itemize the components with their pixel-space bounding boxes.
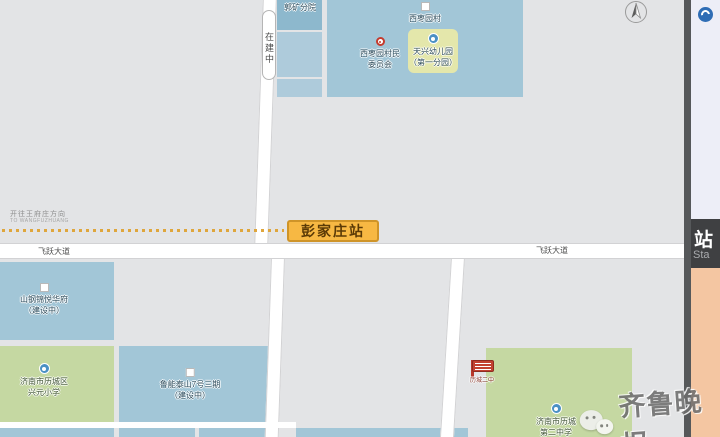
bus-stop-icon [472, 360, 494, 372]
kindergarten-label-line2: （第一分园） [409, 57, 457, 68]
committee-label-line1: 西枣园村民 [360, 48, 400, 59]
road-label-feiyue-right: 飞跃大道 [536, 245, 568, 256]
road-bottom [0, 422, 296, 428]
poi-hospital[interactable]: 郭矿分院 [284, 2, 316, 13]
building-block [277, 79, 322, 97]
licheng2-label-line1: 济南市历城 [536, 416, 576, 427]
village-label: 西枣园村 [409, 13, 441, 24]
station-panel-top[interactable] [691, 0, 720, 219]
road-label-feiyue-left: 飞跃大道 [38, 246, 70, 257]
kindergarten-icon [428, 33, 439, 44]
compass-icon[interactable] [623, 0, 649, 26]
road-vertical-under-construction-south [265, 257, 285, 437]
xingyuan-label-line2: 兴元小学 [28, 387, 60, 398]
watermark: 齐鲁晚报 [577, 378, 720, 437]
panel-station-label-cn: 站 [694, 225, 713, 252]
committee-label-line2: 委员会 [368, 59, 392, 70]
school-icon [39, 363, 50, 374]
building-block [199, 428, 271, 437]
xingyuan-label-line1: 济南市历城区 [20, 376, 68, 387]
station-badge-pengjiazhuang[interactable]: 彭家庄站 [287, 220, 379, 242]
panel-station-label-en: Sta [693, 249, 710, 261]
shangang-label-line1: 山钢锦悦华府 [20, 294, 68, 305]
poi-committee[interactable]: 西枣园村民 委员会 [360, 37, 400, 70]
building-icon [40, 283, 49, 292]
building-block [119, 428, 195, 437]
watermark-text: 齐鲁晚报 [617, 378, 720, 437]
hospital-label: 郭矿分院 [284, 2, 316, 13]
road-vertical-east [440, 257, 465, 437]
building-block [0, 428, 114, 437]
poi-shangang[interactable]: 山钢锦悦华府 （建设中） [20, 283, 68, 316]
luneng-label-line1: 鲁能泰山7号三期 [160, 379, 220, 390]
poi-village[interactable]: 西枣园村 [409, 2, 441, 24]
map-app: 开往王府庄方向 TO WANGFUZHUANG 彭家庄站 在建中 飞跃大道 飞跃… [0, 0, 720, 437]
shangang-label-line2: （建设中） [24, 305, 64, 316]
kindergarten-label-line1: 天兴幼儿园 [413, 46, 453, 57]
under-construction-badge: 在建中 [262, 10, 276, 80]
building-icon [185, 368, 194, 377]
metro-line-dotted [2, 229, 284, 232]
wechat-logo-icon [579, 408, 617, 437]
road-feiyue-avenue [0, 243, 686, 259]
poi-kindergarten[interactable]: 天兴幼儿园 （第一分园） [409, 33, 457, 68]
poi-licheng2-school[interactable]: 济南市历城 第二中学 [536, 403, 576, 437]
poi-luneng[interactable]: 鲁能泰山7号三期 （建设中） [160, 368, 220, 401]
licheng2-label-line2: 第二中学 [540, 427, 572, 437]
building-block [277, 32, 322, 77]
metro-logo-icon [698, 7, 713, 22]
panel-divider [684, 0, 691, 437]
school-icon [551, 403, 562, 414]
luneng-label-line2: （建设中） [170, 390, 210, 401]
government-icon [376, 37, 385, 46]
bus-stop-label: 历城二中 [470, 375, 494, 384]
direction-label-en: TO WANGFUZHUANG [10, 218, 69, 224]
village-icon [421, 2, 430, 11]
poi-xingyuan-school[interactable]: 济南市历城区 兴元小学 [20, 363, 68, 398]
